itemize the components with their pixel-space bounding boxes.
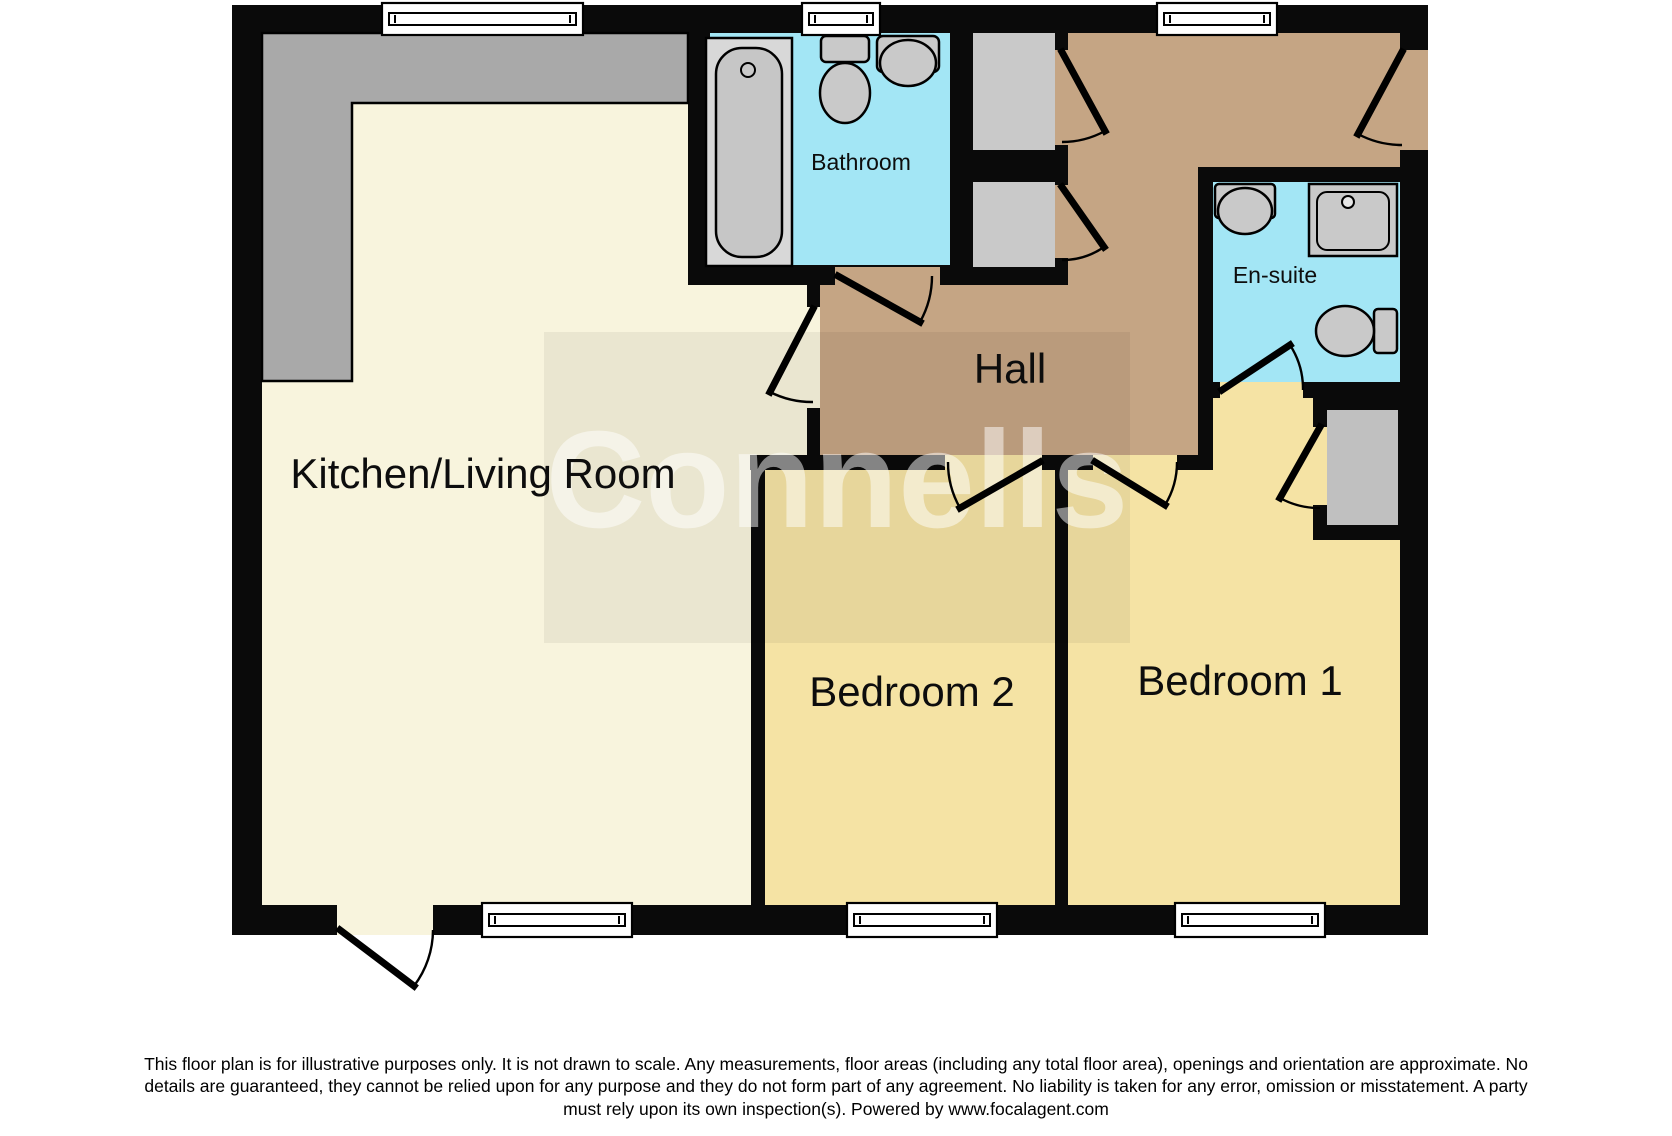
kitchen-top-window: [382, 3, 583, 35]
kitchen-living-room-label: Kitchen/Living Room: [290, 450, 675, 497]
hall-window: [1157, 3, 1277, 35]
gap-patio-door: [337, 905, 433, 935]
hall-label: Hall: [974, 345, 1046, 392]
closet-interior: [1327, 410, 1398, 525]
disclaimer-line-3: must rely upon its own inspection(s). Po…: [0, 1098, 1672, 1120]
cupboard-b: [973, 182, 1055, 267]
bedroom2-label: Bedroom 2: [809, 668, 1014, 715]
bathroom-window: [802, 3, 880, 35]
disclaimer-line-1: This floor plan is for illustrative purp…: [0, 1053, 1672, 1075]
bathtub-icon: [706, 38, 792, 266]
kitchen-bottom-window: [482, 903, 632, 937]
bedroom2-window: [847, 903, 997, 937]
bathroom-label: Bathroom: [811, 149, 911, 175]
floor-plan-drawing: Connells: [0, 0, 1672, 1010]
hall-floor-top: [1068, 33, 1400, 167]
cupboard-a: [973, 33, 1055, 150]
wall-kitchen-hall-upper: [807, 285, 820, 307]
ensuite-sink-icon: [1215, 184, 1275, 234]
bedroom1-label: Bedroom 1: [1137, 657, 1342, 704]
bedroom1-window: [1175, 903, 1325, 937]
ensuite-label: En-suite: [1233, 262, 1317, 288]
patio-door: [340, 930, 433, 986]
bathroom-toilet-icon: [820, 36, 870, 123]
gap-entrance-door: [1400, 50, 1428, 150]
shower-icon: [1309, 184, 1397, 256]
wall-hall-bedroom1: [1198, 167, 1213, 470]
floor-plan-page: Connells: [0, 0, 1672, 1136]
disclaimer-line-2: details are guaranteed, they cannot be r…: [0, 1075, 1672, 1097]
disclaimer-text: This floor plan is for illustrative purp…: [0, 1053, 1672, 1120]
bathroom-sink-icon: [877, 36, 939, 86]
ensuite-toilet-icon: [1316, 306, 1397, 356]
